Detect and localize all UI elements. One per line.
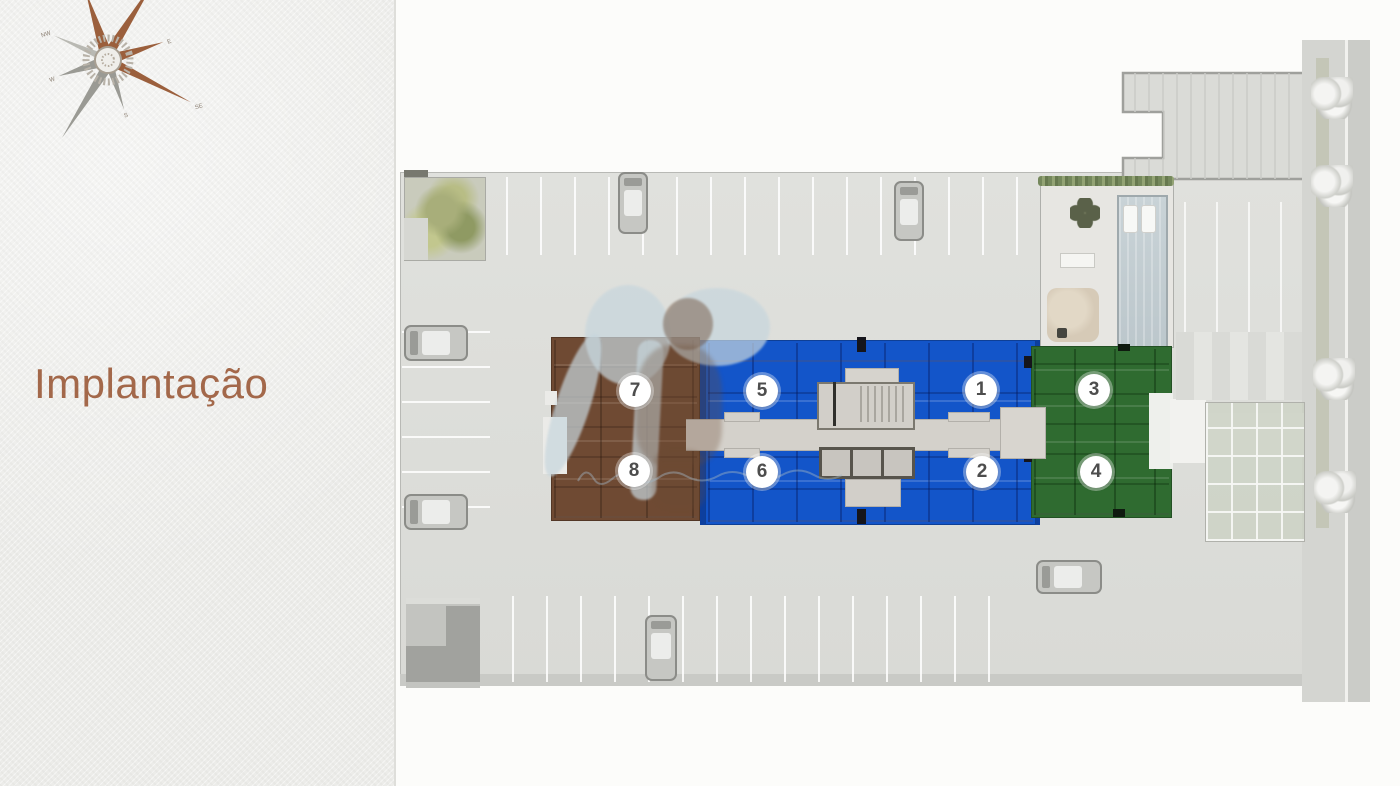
- planting-strip: [1316, 58, 1329, 528]
- parked-car: [645, 615, 677, 681]
- wing-brown-units-7-8: [551, 337, 700, 521]
- elevator-cab: [853, 450, 881, 476]
- courtyard-table: [1060, 253, 1095, 268]
- unit-marker-3[interactable]: 3: [1078, 374, 1110, 406]
- door-mark: [1113, 509, 1125, 517]
- unit-marker-7[interactable]: 7: [619, 375, 651, 407]
- svg-text:SE: SE: [194, 103, 203, 111]
- door-mark: [1024, 356, 1032, 368]
- pool-lounger: [1123, 205, 1138, 233]
- parked-car: [404, 325, 468, 361]
- hedge: [1038, 176, 1174, 186]
- courtyard-plant: [1070, 198, 1100, 228]
- lounge-deck: [1047, 288, 1099, 342]
- svg-text:W: W: [49, 76, 57, 84]
- compass-rose-icon: N NE E SE S SW W NW: [25, 0, 215, 140]
- stair-divider: [833, 382, 836, 426]
- unit-marker-1[interactable]: 1: [965, 374, 997, 406]
- parking-stripes-top: [506, 177, 1030, 255]
- unit-marker-4[interactable]: 4: [1080, 456, 1112, 488]
- svg-text:S: S: [123, 113, 129, 120]
- page-title: Implantação: [34, 360, 268, 408]
- elevator-bank: [819, 447, 915, 479]
- deck-planter: [1057, 328, 1067, 338]
- parked-car: [618, 172, 648, 234]
- unit-marker-2[interactable]: 2: [966, 456, 998, 488]
- site-plan-page: Implantação N NE E SE S SW W NW: [0, 0, 1400, 786]
- parking-stripes-right: [1184, 202, 1296, 342]
- entry-walk-stripes: [1176, 332, 1302, 400]
- elevator-cab: [822, 450, 850, 476]
- wing-brown-rooms: [554, 340, 697, 518]
- svg-text:NW: NW: [41, 30, 53, 39]
- street-tree: [1311, 165, 1353, 207]
- ramp-shadow: [446, 606, 480, 682]
- facade-notch: [545, 391, 557, 405]
- glass-entry-canopy: [1205, 402, 1305, 542]
- corridor-pad: [724, 412, 760, 422]
- landscaped-island-step: [404, 218, 428, 260]
- ramp-shadow: [406, 646, 448, 682]
- street-tree: [1314, 471, 1356, 513]
- unit-marker-8[interactable]: 8: [618, 455, 650, 487]
- elevator-cab: [884, 450, 912, 476]
- pool-lounger: [1141, 205, 1156, 233]
- corridor-lobby: [1000, 407, 1046, 459]
- svg-text:E: E: [167, 39, 173, 46]
- corridor-pad: [948, 412, 990, 422]
- door-mark: [1118, 344, 1130, 351]
- facade-notch: [543, 417, 567, 474]
- parked-car: [1036, 560, 1102, 594]
- street-tree: [1313, 358, 1355, 400]
- street-tree: [1311, 77, 1353, 119]
- unit-marker-6[interactable]: 6: [746, 456, 778, 488]
- entry-landing: [1170, 399, 1206, 463]
- parked-car: [404, 494, 468, 530]
- core-stub: [845, 479, 901, 507]
- parking-stripes-bottom: [512, 596, 992, 682]
- door-mark: [857, 509, 866, 524]
- stair-treads: [860, 386, 906, 422]
- unit-marker-5[interactable]: 5: [746, 375, 778, 407]
- door-mark: [857, 337, 866, 352]
- parked-car: [894, 181, 924, 241]
- neighbor-building-roof: [1121, 71, 1311, 183]
